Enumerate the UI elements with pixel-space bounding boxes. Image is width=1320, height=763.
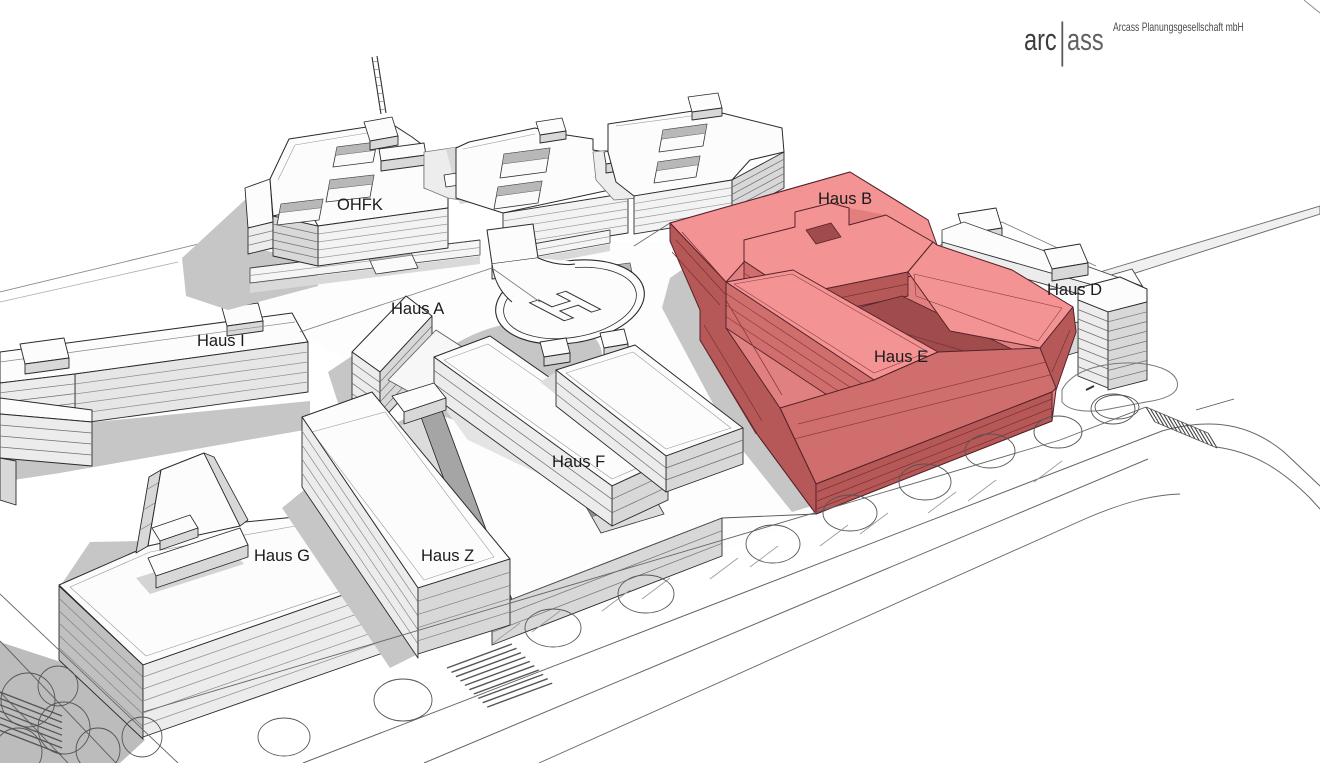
svg-text:Haus B: Haus B bbox=[818, 190, 872, 208]
svg-text:Haus D: Haus D bbox=[1047, 281, 1102, 299]
svg-text:Arcass Planungsgesellschaft mb: Arcass Planungsgesellschaft mbH bbox=[1113, 22, 1244, 34]
svg-text:Haus G: Haus G bbox=[254, 547, 310, 565]
svg-text:OHFK: OHFK bbox=[337, 196, 383, 214]
svg-text:ass: ass bbox=[1067, 22, 1104, 57]
svg-text:Haus A: Haus A bbox=[391, 300, 444, 318]
svg-text:Haus I: Haus I bbox=[197, 332, 245, 350]
svg-text:Haus Z: Haus Z bbox=[421, 547, 474, 565]
svg-text:Haus F: Haus F bbox=[552, 453, 605, 471]
svg-text:arc: arc bbox=[1024, 22, 1057, 57]
svg-text:Haus E: Haus E bbox=[874, 348, 928, 366]
